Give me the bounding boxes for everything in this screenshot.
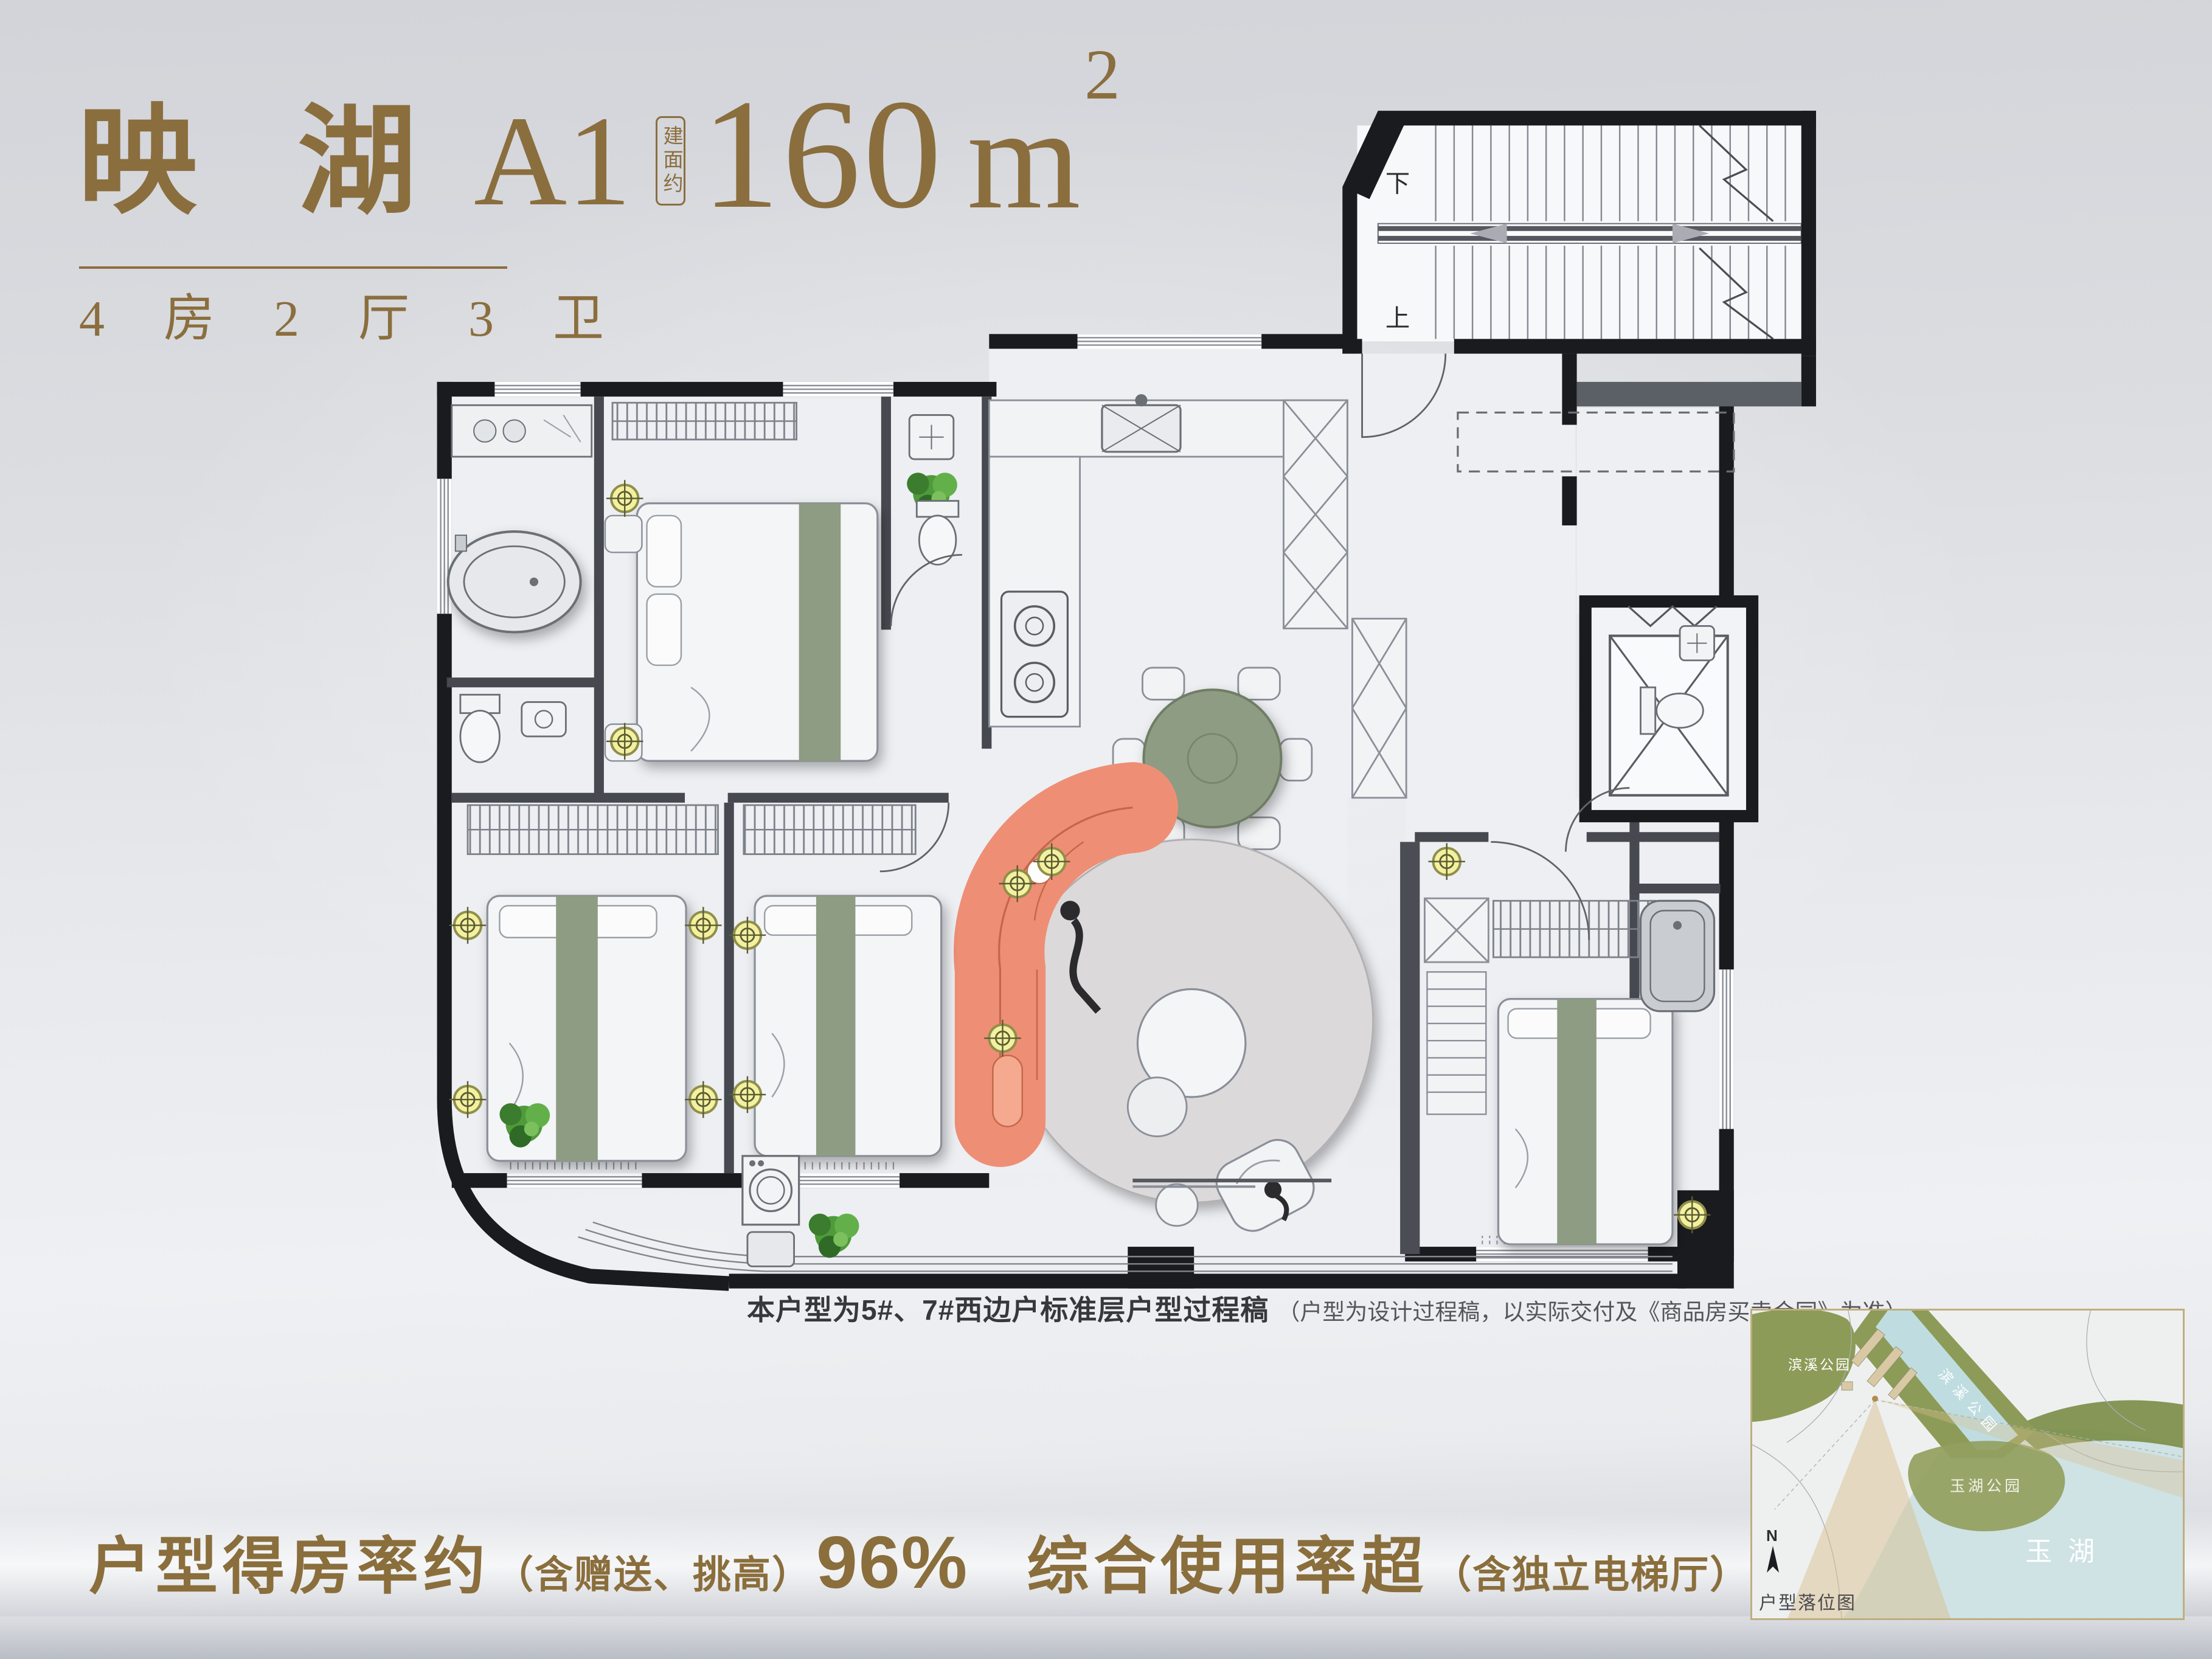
washing-machine — [743, 1156, 799, 1225]
floor-base — [0, 1616, 2212, 1659]
bed-runner — [816, 896, 856, 1156]
nightstand — [605, 516, 642, 553]
stat1-note: （含赠送、挑高） — [495, 1544, 811, 1599]
foyer-cabinet — [1352, 618, 1406, 798]
shelf — [1427, 972, 1486, 1114]
floor-plan: 下 上 — [397, 111, 1820, 1301]
pillow — [647, 516, 681, 587]
toilet — [460, 694, 500, 762]
stat1-label: 户型得房率约 — [89, 1517, 490, 1606]
poster: 映 湖 A1 建面约 160 m2 4 房 2 厅 3 卫 — [0, 0, 2212, 1659]
lobby-wall — [1577, 382, 1801, 406]
map-caption: 户型落位图 — [1759, 1593, 1856, 1613]
bed — [637, 504, 877, 761]
tv-wall — [1400, 842, 1420, 1254]
site-marker — [1872, 1396, 1878, 1402]
pillow — [647, 594, 681, 665]
plan-caption: 本户型为5#、7#西边户标准层户型过程稿 （户型为设计过程稿，以实际交付及《商品… — [747, 1288, 1907, 1328]
location-map: 滨溪公园 滨溪公园 玉湖公园 玉湖 N 户型落位图 — [1750, 1309, 2185, 1620]
stat2-label: 综合使用率超 — [1027, 1517, 1428, 1606]
bed — [755, 896, 941, 1156]
area-unit-sup: 2 — [1084, 46, 1120, 103]
tall-cabinet — [1283, 400, 1347, 628]
stats-line: 户型得房率约 （含赠送、挑高） 96% 综合使用率超 （含独立电梯厅） 100% — [89, 1517, 1949, 1606]
map-label-lake: 玉湖 — [2025, 1537, 2110, 1567]
stairwell: 下 上 — [1378, 125, 1801, 339]
stat2-note: （含独立电梯厅） — [1433, 1544, 1749, 1599]
stat1-value: 96% — [816, 1520, 968, 1605]
stair-up-label: 上 — [1385, 304, 1410, 332]
compass-n-letter: N — [1766, 1526, 1778, 1545]
caption-main: 本户型为5#、7#西边户标准层户型过程稿 — [747, 1288, 1269, 1328]
washbasin — [522, 702, 566, 736]
bed-runner — [556, 896, 598, 1161]
map-label-park-mid: 玉湖公园 — [1950, 1478, 2023, 1495]
side-table — [1128, 1078, 1187, 1137]
stair-treads-upper — [1422, 125, 1801, 221]
map-label-park-top: 滨溪公园 — [1788, 1357, 1851, 1373]
laundry-sink — [747, 1232, 794, 1266]
stove — [1002, 592, 1068, 717]
bed-runner — [1557, 999, 1597, 1244]
project-name: 映 湖 — [78, 109, 452, 216]
bed — [1498, 999, 1672, 1244]
stair-down-label: 下 — [1385, 169, 1410, 197]
bed-runner — [799, 504, 841, 761]
stool — [1156, 1184, 1198, 1226]
